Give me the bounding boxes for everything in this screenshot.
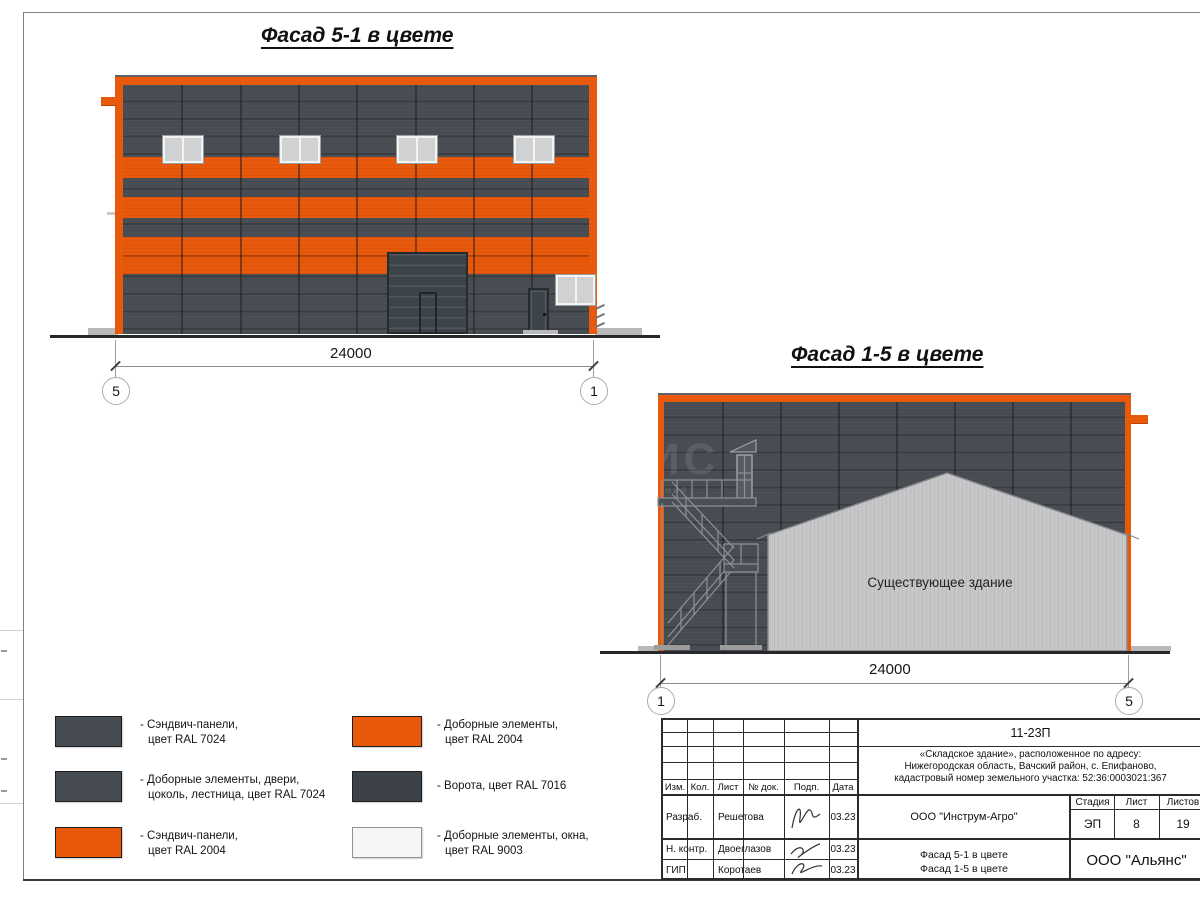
- dimension-value: 24000: [330, 345, 372, 362]
- tb-header-izm: Изм.: [663, 781, 687, 794]
- panel-seam: [298, 85, 300, 334]
- panel-seam: [356, 85, 358, 334]
- facade15-title: Фасад 1-5 в цвете: [791, 343, 983, 367]
- tb-role: Н. контр.: [666, 840, 714, 859]
- legend-label: - Ворота, цвет RAL 7016: [437, 779, 566, 794]
- tb-doc-number: 11-23П: [859, 720, 1200, 746]
- facade51-drawing: 24000 5 1: [0, 0, 700, 420]
- window-mullion: [575, 277, 577, 303]
- dimension-line: [660, 683, 1128, 684]
- fire-escape-stair: [650, 435, 765, 655]
- tb-sheet-value: 8: [1114, 810, 1159, 838]
- signature: [786, 798, 828, 836]
- tb-line: [663, 746, 857, 747]
- parapet-trim: [658, 395, 1131, 402]
- parapet-trim: [115, 77, 597, 85]
- tb-org: ООО "Инструм-Агро": [859, 796, 1069, 838]
- extension-line: [115, 340, 116, 377]
- tb-date: 03.23: [829, 840, 857, 859]
- legend-label: - Сэндвич-панели, цвет RAL 7024: [140, 718, 238, 747]
- tb-date: 03.23: [829, 860, 857, 880]
- legend-label: - Доборные элементы, двери, цоколь, лест…: [140, 773, 325, 802]
- tb-sheet-header: Лист: [1114, 796, 1159, 809]
- window: [397, 136, 437, 163]
- tb-role: Разраб.: [666, 796, 714, 838]
- door-threshold-pad: [523, 330, 558, 334]
- tb-drawing-name: Фасад 5-1 в цвете Фасад 1-5 в цвете: [859, 844, 1069, 880]
- facade15-drawing: ИС ания: [0, 380, 1200, 720]
- tb-name: Коротаев: [718, 860, 784, 880]
- window: [556, 275, 595, 305]
- tb-line: [663, 732, 857, 733]
- gutter-outlet: [1131, 415, 1148, 424]
- legend-swatch-ral7016-gate: [352, 771, 422, 802]
- dimension-line: [115, 366, 593, 367]
- tb-header-doc: № док.: [743, 781, 784, 794]
- ground-line: [50, 335, 660, 338]
- tb-line: [784, 720, 785, 880]
- legend-label: - Доборные элементы, окна, цвет RAL 9003: [437, 829, 589, 858]
- tb-role: ГИП: [666, 860, 714, 880]
- title-block: Изм. Кол. Лист № док. Подп. Дата Разраб.…: [661, 718, 1200, 880]
- plinth-pad: [595, 328, 642, 335]
- entry-door: [528, 288, 549, 334]
- legend-swatch-ral7024-elements: [55, 771, 122, 802]
- ground-line: [600, 651, 1170, 654]
- window-mullion: [416, 138, 418, 161]
- tb-name: Двоеглазов: [718, 840, 784, 859]
- window-mullion: [182, 138, 184, 161]
- legend-swatch-ral9003-windows: [352, 827, 422, 858]
- legend-swatch-ral2004-panels: [55, 827, 122, 858]
- panel-seam: [181, 85, 183, 334]
- tb-sheets-header: Листов: [1159, 796, 1200, 809]
- tb-header-kol: Кол.: [687, 781, 713, 794]
- gate: [387, 252, 468, 334]
- legend-label: - Доборные элементы, цвет RAL 2004: [437, 718, 558, 747]
- gate-wicket-door: [419, 292, 437, 334]
- tb-project-name: «Складское здание», расположенное по адр…: [859, 749, 1200, 794]
- window: [280, 136, 320, 163]
- panel-seam: [473, 85, 475, 334]
- legend-swatch-ral7024-panels: [55, 716, 122, 747]
- tb-stage-value: ЭП: [1071, 810, 1114, 838]
- gutter-outlet: [101, 97, 117, 106]
- tb-stage-header: Стадия: [1071, 796, 1114, 809]
- tb-line: [857, 746, 1200, 747]
- tb-header-list: Лист: [713, 781, 743, 794]
- legend-swatch-ral2004-elements: [352, 716, 422, 747]
- door-handle: [543, 313, 546, 316]
- existing-building: [755, 468, 1155, 654]
- legend-label: - Сэндвич-панели, цвет RAL 2004: [140, 829, 238, 858]
- extension-line: [593, 340, 594, 377]
- window-mullion: [533, 138, 535, 161]
- signature: [786, 840, 828, 880]
- tb-header-podp: Подп.: [784, 781, 829, 794]
- plinth-pad: [88, 328, 118, 335]
- tb-line: [663, 762, 857, 763]
- tb-company: ООО "Альянс": [1071, 840, 1200, 880]
- window: [514, 136, 554, 163]
- window: [163, 136, 203, 163]
- corner-trim-left: [115, 77, 123, 334]
- tb-line: [663, 779, 857, 780]
- tb-header-data: Дата: [829, 781, 857, 794]
- legend: - Сэндвич-панели, цвет RAL 7024 - Доборн…: [0, 700, 660, 880]
- wall-tick: [107, 212, 115, 215]
- drawing-sheet: Фасад 5-1 в цвете: [0, 0, 1200, 900]
- axis-bubble-5: 5: [1115, 687, 1143, 715]
- tb-sheets-value: 19: [1159, 810, 1200, 838]
- tb-name: Решетова: [718, 796, 784, 838]
- window-mullion: [299, 138, 301, 161]
- panel-seam: [240, 85, 242, 334]
- dimension-value: 24000: [869, 661, 911, 678]
- tb-date: 03.23: [829, 796, 857, 838]
- existing-building-label: Существующее здание: [800, 575, 1080, 590]
